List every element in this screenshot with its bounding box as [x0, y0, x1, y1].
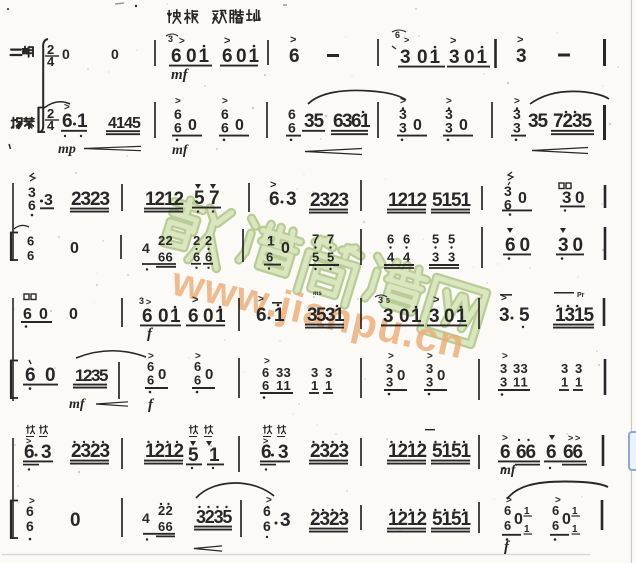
- svg-text:3: 3: [562, 188, 571, 207]
- svg-text:0: 0: [514, 511, 523, 528]
- svg-text:1: 1: [521, 375, 528, 390]
- svg-text:3: 3: [378, 295, 383, 305]
- svg-text:6: 6: [526, 442, 537, 463]
- svg-text:6: 6: [174, 120, 182, 136]
- svg-text:1: 1: [477, 47, 488, 68]
- svg-text:3: 3: [400, 47, 411, 68]
- svg-text:3: 3: [41, 442, 52, 463]
- svg-text:4: 4: [142, 240, 150, 256]
- svg-text:1: 1: [461, 190, 472, 211]
- svg-text:6: 6: [62, 111, 73, 132]
- svg-text:4: 4: [142, 510, 150, 526]
- svg-text:1: 1: [311, 378, 318, 393]
- svg-text:0: 0: [205, 366, 213, 383]
- svg-text:0: 0: [520, 235, 531, 256]
- svg-text:7: 7: [209, 188, 220, 209]
- svg-text:2: 2: [158, 233, 165, 248]
- svg-text:0: 0: [399, 306, 410, 327]
- svg-text:0: 0: [111, 46, 119, 62]
- svg-text:3: 3: [499, 305, 510, 326]
- svg-text:0: 0: [39, 306, 48, 323]
- svg-text:6: 6: [504, 518, 511, 533]
- svg-text:0: 0: [188, 117, 197, 134]
- svg-text:3: 3: [286, 189, 297, 210]
- svg-text:0: 0: [69, 306, 78, 323]
- svg-text:6: 6: [222, 46, 233, 67]
- svg-text:1: 1: [77, 111, 88, 132]
- svg-text:>: >: [517, 34, 523, 46]
- svg-text:1: 1: [209, 445, 220, 466]
- svg-text:6: 6: [395, 30, 400, 40]
- svg-text:3: 3: [558, 235, 569, 256]
- svg-text:6: 6: [387, 232, 394, 247]
- svg-text:1: 1: [461, 509, 472, 530]
- svg-text:1: 1: [274, 305, 285, 326]
- svg-text:6: 6: [266, 250, 273, 265]
- svg-text:4: 4: [387, 250, 395, 265]
- svg-text:3: 3: [445, 120, 453, 136]
- svg-text:0: 0: [518, 190, 527, 207]
- svg-text:3: 3: [339, 190, 350, 211]
- svg-text:3: 3: [339, 441, 350, 462]
- svg-text:>: >: [404, 35, 409, 45]
- svg-text:6: 6: [573, 442, 584, 463]
- svg-text:6: 6: [194, 373, 201, 388]
- svg-text:6: 6: [158, 250, 165, 265]
- svg-text:0: 0: [573, 235, 584, 256]
- svg-text:6: 6: [205, 250, 212, 265]
- svg-text:1: 1: [561, 375, 568, 390]
- svg-text:2: 2: [193, 233, 200, 248]
- svg-text:3: 3: [44, 192, 53, 209]
- svg-text:0: 0: [236, 46, 247, 67]
- svg-text:3: 3: [100, 441, 111, 462]
- svg-text:0: 0: [186, 46, 197, 67]
- svg-text:7: 7: [327, 232, 334, 247]
- svg-text:6: 6: [256, 305, 267, 326]
- svg-text:3: 3: [280, 510, 291, 531]
- svg-text:3: 3: [399, 120, 407, 136]
- svg-text:1: 1: [267, 233, 275, 249]
- svg-text:6: 6: [552, 518, 559, 533]
- svg-text:6: 6: [263, 503, 271, 519]
- svg-text:1: 1: [524, 506, 530, 517]
- svg-text:0: 0: [203, 306, 214, 327]
- svg-text:1: 1: [199, 46, 210, 67]
- svg-text:2: 2: [166, 503, 173, 518]
- svg-text:6: 6: [166, 519, 173, 534]
- svg-text:6: 6: [263, 518, 271, 534]
- svg-text:4: 4: [47, 118, 55, 133]
- svg-text:6: 6: [288, 120, 296, 136]
- svg-text:>: >: [433, 294, 439, 306]
- svg-text:5: 5: [386, 298, 390, 305]
- svg-text:1: 1: [461, 441, 472, 462]
- svg-text:ms: ms: [313, 291, 322, 297]
- svg-text:0: 0: [158, 306, 169, 327]
- svg-text:5: 5: [519, 305, 530, 326]
- svg-text:1: 1: [524, 524, 530, 535]
- svg-text:6: 6: [26, 518, 34, 534]
- svg-text:mf: mf: [171, 67, 190, 83]
- svg-text:6: 6: [28, 197, 36, 213]
- svg-text:3: 3: [168, 34, 173, 44]
- svg-text:6: 6: [552, 503, 559, 518]
- svg-text:1: 1: [276, 378, 283, 393]
- svg-text:3: 3: [100, 189, 111, 210]
- svg-text:6: 6: [188, 306, 199, 327]
- svg-text:3: 3: [432, 250, 439, 265]
- svg-text:5: 5: [99, 366, 108, 385]
- svg-text:mf: mf: [172, 143, 189, 158]
- svg-text:0: 0: [562, 511, 571, 528]
- svg-text:5: 5: [327, 250, 334, 265]
- svg-text:6: 6: [261, 442, 272, 463]
- svg-text:0: 0: [437, 367, 445, 384]
- svg-text:2: 2: [417, 509, 428, 530]
- svg-text:5: 5: [222, 507, 232, 527]
- svg-text:Pr: Pr: [577, 292, 585, 299]
- svg-text:6: 6: [166, 250, 173, 265]
- svg-text:6: 6: [24, 442, 35, 463]
- svg-text:1: 1: [430, 47, 441, 68]
- svg-text:1: 1: [411, 306, 422, 327]
- svg-text:0: 0: [397, 367, 405, 384]
- svg-text:5: 5: [432, 232, 439, 247]
- svg-text:2: 2: [417, 441, 428, 462]
- svg-text:0: 0: [45, 365, 56, 386]
- svg-text:5: 5: [314, 111, 325, 132]
- svg-text:mp: mp: [58, 142, 76, 157]
- svg-text:2: 2: [174, 441, 185, 462]
- svg-text:1: 1: [249, 46, 260, 67]
- svg-text:0: 0: [444, 306, 455, 327]
- svg-text:3: 3: [339, 509, 350, 530]
- svg-text:3: 3: [429, 306, 440, 327]
- svg-text:6: 6: [23, 306, 32, 323]
- svg-text:2: 2: [205, 233, 212, 248]
- svg-text:0: 0: [158, 366, 166, 383]
- svg-text:1: 1: [513, 375, 520, 390]
- svg-text:3: 3: [513, 120, 521, 136]
- svg-text:0: 0: [417, 47, 428, 68]
- svg-text:>: >: [450, 35, 456, 47]
- svg-text:1: 1: [284, 378, 291, 393]
- svg-text:0: 0: [70, 240, 79, 257]
- svg-text:6: 6: [158, 519, 165, 534]
- svg-text:4: 4: [403, 250, 411, 265]
- svg-text:6: 6: [505, 235, 516, 256]
- svg-text:6: 6: [27, 248, 34, 263]
- svg-text:3: 3: [426, 375, 433, 390]
- svg-text:1: 1: [215, 306, 226, 327]
- svg-text:mf: mf: [69, 397, 86, 412]
- svg-text:3: 3: [386, 375, 393, 390]
- svg-text:0: 0: [70, 510, 81, 531]
- svg-text:3: 3: [516, 46, 527, 67]
- svg-text:>: >: [258, 294, 264, 305]
- svg-text:1: 1: [572, 524, 578, 535]
- svg-text:2: 2: [417, 190, 428, 211]
- svg-text:6: 6: [403, 232, 410, 247]
- svg-text:3: 3: [383, 306, 394, 327]
- svg-text:5: 5: [538, 111, 549, 132]
- svg-text:6: 6: [26, 503, 34, 519]
- svg-text:6: 6: [193, 250, 200, 265]
- svg-text:6: 6: [262, 378, 269, 393]
- svg-text:0: 0: [459, 117, 468, 134]
- svg-text:2: 2: [158, 503, 165, 518]
- svg-text:0: 0: [281, 240, 290, 257]
- svg-text:3: 3: [139, 296, 144, 306]
- svg-text:5: 5: [194, 188, 205, 209]
- svg-text:6: 6: [25, 365, 36, 386]
- svg-text:6: 6: [500, 442, 511, 463]
- svg-text:7: 7: [312, 232, 319, 247]
- svg-text:>: >: [192, 294, 198, 306]
- svg-text:5: 5: [584, 305, 595, 326]
- svg-text:0: 0: [235, 117, 244, 134]
- svg-text:1: 1: [575, 375, 582, 390]
- svg-text:3: 3: [448, 250, 455, 265]
- svg-text:6: 6: [142, 306, 153, 327]
- svg-text:3: 3: [449, 47, 460, 68]
- svg-text:0: 0: [62, 46, 70, 62]
- svg-text:2: 2: [174, 189, 185, 210]
- svg-text:6: 6: [546, 442, 557, 463]
- svg-text:2: 2: [166, 233, 173, 248]
- svg-text:6: 6: [147, 373, 154, 388]
- svg-text:5: 5: [448, 232, 455, 247]
- svg-text:3: 3: [278, 442, 289, 463]
- svg-text:5: 5: [582, 111, 593, 132]
- svg-text:1: 1: [325, 378, 332, 393]
- svg-text:6: 6: [221, 120, 229, 136]
- svg-text:6: 6: [504, 503, 511, 518]
- svg-text:1: 1: [360, 111, 371, 132]
- svg-text:5: 5: [312, 250, 319, 265]
- svg-text:1: 1: [456, 306, 467, 327]
- svg-text:4: 4: [47, 54, 55, 69]
- svg-text:6: 6: [289, 46, 300, 67]
- svg-text:6: 6: [27, 234, 34, 249]
- svg-text:5: 5: [132, 115, 141, 132]
- svg-text:mf: mf: [500, 463, 517, 478]
- svg-text:1: 1: [334, 305, 345, 326]
- svg-text:6: 6: [171, 46, 182, 67]
- svg-text:6: 6: [269, 189, 280, 210]
- svg-text:0: 0: [575, 188, 584, 207]
- svg-text:0: 0: [464, 47, 475, 68]
- svg-text:1: 1: [170, 306, 181, 327]
- svg-text:5: 5: [188, 445, 199, 466]
- svg-text:1: 1: [572, 506, 578, 517]
- svg-text:0: 0: [413, 117, 422, 134]
- svg-text:3: 3: [500, 375, 507, 390]
- svg-text:>: >: [290, 34, 296, 46]
